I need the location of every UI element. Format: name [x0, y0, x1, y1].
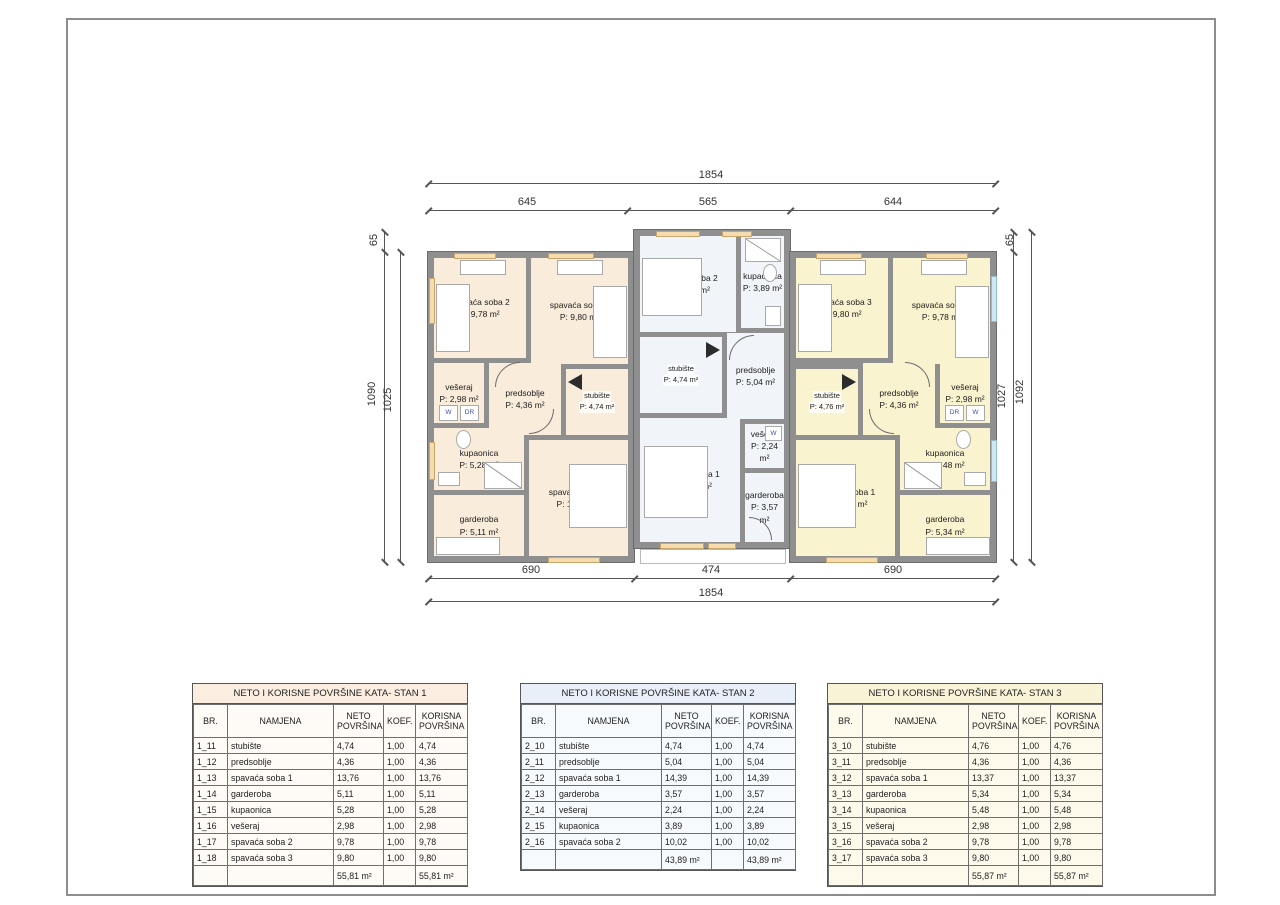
area-table-stan3: NETO I KORISNE POVRŠINE KATA- STAN 3 BR.… [827, 683, 1103, 887]
table-cell: 1,00 [384, 754, 416, 770]
table-cell: 1,00 [384, 850, 416, 866]
table-cell: 1,00 [712, 770, 744, 786]
table-cell: 1,00 [1019, 818, 1051, 834]
room-name: garderoba [926, 513, 965, 525]
table-cell: 55,87 m² [1051, 866, 1103, 886]
table-cell: 1,00 [712, 738, 744, 754]
table-cell: 4,36 [969, 754, 1019, 770]
table-cell: 4,76 [969, 738, 1019, 754]
toilet-icon [763, 264, 777, 282]
dimension-line-left-inner [400, 252, 401, 562]
table-cell: 1,00 [1019, 802, 1051, 818]
room-stan3-stubiste: stubište P: 4,76 m² [796, 369, 858, 435]
table-cell: 3_17 [829, 850, 863, 866]
window [826, 557, 878, 563]
table-cell: stubište [863, 738, 969, 754]
table-cell [863, 866, 969, 886]
table-cell: garderoba [556, 786, 662, 802]
table-row: 1_16vešeraj2,981,002,98 [194, 818, 468, 834]
table-body: 3_10stubište4,761,004,763_11predsoblje4,… [829, 738, 1103, 886]
room-stan1-spavaca-soba-2: spavaća soba 2 P: 9,78 m² [434, 258, 526, 358]
table-cell: 1,00 [384, 770, 416, 786]
table-cell: 1,00 [712, 754, 744, 770]
floor-plan: spavaća soba 2 P: 9,78 m² spavaća soba 3… [425, 230, 997, 570]
table-cell: garderoba [228, 786, 334, 802]
table-cell: 5,34 [1051, 786, 1103, 802]
table-cell: 3_14 [829, 802, 863, 818]
table-cell: 9,78 [1051, 834, 1103, 850]
table-row: 2_10stubište4,741,004,74 [522, 738, 796, 754]
terrace-outline [640, 549, 786, 564]
table-cell: vešeraj [556, 802, 662, 818]
room-area: P: 2,24 m² [745, 440, 784, 465]
table-cell: 13,76 [334, 770, 384, 786]
sink-icon [765, 306, 781, 326]
stair-direction-arrow-icon [842, 374, 856, 390]
table-cell: kupaonica [228, 802, 334, 818]
table-cell: 1,00 [384, 818, 416, 834]
table-cell: 1,00 [384, 786, 416, 802]
dimension-line-top-segments [428, 210, 995, 211]
shower-icon [904, 462, 942, 489]
table-row: 2_14vešeraj2,241,002,24 [522, 802, 796, 818]
table-row: 1_18spavaća soba 39,801,009,80 [194, 850, 468, 866]
room-stan2-garderoba: garderoba P: 3,57 m² [745, 473, 784, 542]
table-cell: predsoblje [228, 754, 334, 770]
column-header: NAMJENA [863, 705, 969, 738]
room-area: P: 5,11 m² [460, 526, 499, 538]
toilet-icon [956, 430, 971, 449]
room-stan3-spavaca-soba-3: spavaća soba 3 P: 9,80 m² [796, 258, 888, 358]
table-row: 2_13garderoba3,571,003,57 [522, 786, 796, 802]
table-cell: spavaća soba 1 [863, 770, 969, 786]
table-cell [1019, 866, 1051, 886]
room-name: predsoblje [879, 387, 918, 399]
table-cell: 1_17 [194, 834, 228, 850]
table-cell: spavaća soba 1 [556, 770, 662, 786]
desk-icon [557, 260, 603, 275]
column-header: KORISNA POVRŠINA [416, 705, 468, 738]
table-cell [522, 850, 556, 870]
room-stan2-predsoblje: predsoblje P: 5,04 m² [727, 333, 784, 419]
sink-icon [964, 472, 986, 486]
table-row: 3_16spavaća soba 29,781,009,78 [829, 834, 1103, 850]
table-row: 43,89 m²43,89 m² [522, 850, 796, 870]
table-cell: 2,98 [334, 818, 384, 834]
dryer-icon: DR [460, 405, 479, 421]
table-row: 3_15vešeraj2,981,002,98 [829, 818, 1103, 834]
dim-label-left-offset: 65 [368, 218, 380, 262]
table-cell: 55,87 m² [969, 866, 1019, 886]
column-header: BR. [194, 705, 228, 738]
table-cell: spavaća soba 2 [228, 834, 334, 850]
table-row: 3_13garderoba5,341,005,34 [829, 786, 1103, 802]
room-stan1-predsoblje: predsoblje P: 4,36 m² [489, 363, 561, 435]
table-row: 1_17spavaća soba 29,781,009,78 [194, 834, 468, 850]
column-header: NETO POVRŠINA [662, 705, 712, 738]
room-stan2-veseraj: vešeraj P: 2,24 m² W [745, 424, 784, 468]
bed-icon [798, 464, 856, 528]
door-arc [495, 362, 520, 387]
table-cell: 1_11 [194, 738, 228, 754]
room-stan1-kupaonica: kupaonica P: 5,28 m² [434, 428, 524, 490]
table-cell: 5,11 [416, 786, 468, 802]
dimension-line-bottom-segments [428, 578, 995, 579]
table-cell: 1_15 [194, 802, 228, 818]
window [816, 253, 862, 259]
table-cell: 14,39 [744, 770, 796, 786]
washer-icon: W [765, 426, 782, 441]
window [429, 278, 435, 324]
table-row: 2_11predsoblje5,041,005,04 [522, 754, 796, 770]
table-cell: 5,34 [969, 786, 1019, 802]
table-cell: 14,39 [662, 770, 712, 786]
table-cell: 4,36 [334, 754, 384, 770]
column-header: NETO POVRŠINA [969, 705, 1019, 738]
table-cell: garderoba [863, 786, 969, 802]
room-stan3-spavaca-soba-1: spavaća soba 1 P: 13,37 m² [796, 440, 895, 556]
room-area: P: 5,04 m² [736, 376, 775, 388]
table-cell: 4,74 [744, 738, 796, 754]
table-row: 3_12spavaća soba 113,371,0013,37 [829, 770, 1103, 786]
table-cell: 1,00 [712, 786, 744, 802]
table-cell: 3_16 [829, 834, 863, 850]
table-cell: 2,98 [969, 818, 1019, 834]
door-arc [905, 362, 930, 387]
table-row: 55,81 m²55,81 m² [194, 866, 468, 886]
table-row: 1_12predsoblje4,361,004,36 [194, 754, 468, 770]
room-stan3-predsoblje: predsoblje P: 4,36 m² [863, 363, 935, 435]
table-cell: 5,28 [334, 802, 384, 818]
table-cell: 1,00 [712, 802, 744, 818]
dim-label-top-total: 1854 [699, 169, 723, 181]
table-cell: 5,04 [744, 754, 796, 770]
table-cell: 4,76 [1051, 738, 1103, 754]
table-cell: 2_15 [522, 818, 556, 834]
dim-label-right-outer: 1092 [1014, 370, 1026, 414]
table-cell: spavaća soba 2 [556, 834, 662, 850]
table-cell: 2_12 [522, 770, 556, 786]
table-cell: 5,28 [416, 802, 468, 818]
table-cell: 1,00 [1019, 850, 1051, 866]
table-row: 2_16spavaća soba 210,021,0010,02 [522, 834, 796, 850]
area-table-stan2: NETO I KORISNE POVRŠINE KATA- STAN 2 BR.… [520, 683, 796, 871]
room-stan3-veseraj: vešeraj P: 2,98 m² DR W [940, 363, 990, 423]
table-row: 3_17spavaća soba 39,801,009,80 [829, 850, 1103, 866]
table-cell: 3,57 [744, 786, 796, 802]
door-arc [869, 409, 894, 434]
washer-icon: W [966, 405, 985, 421]
table-cell: 3_11 [829, 754, 863, 770]
table-cell: vešeraj [228, 818, 334, 834]
bed-icon [644, 446, 708, 518]
table-cell: 2_13 [522, 786, 556, 802]
table-cell [712, 850, 744, 870]
table-cell: 13,37 [969, 770, 1019, 786]
window [991, 440, 997, 482]
door-arc [729, 335, 754, 360]
table-cell: 1,00 [712, 818, 744, 834]
table-row: 1_13spavaća soba 113,761,0013,76 [194, 770, 468, 786]
table-cell: 3,89 [744, 818, 796, 834]
room-stan1-spavaca-soba-3: spavaća soba 3 P: 9,80 m² [531, 258, 628, 364]
table-cell: 9,78 [969, 834, 1019, 850]
table-cell: 1,00 [1019, 738, 1051, 754]
table-body: 2_10stubište4,741,004,742_11predsoblje5,… [522, 738, 796, 870]
room-area: P: 4,74 m² [579, 402, 616, 413]
table-cell: kupaonica [863, 802, 969, 818]
column-header: BR. [522, 705, 556, 738]
table-cell: 9,78 [334, 834, 384, 850]
table-cell: 10,02 [662, 834, 712, 850]
table-cell [228, 866, 334, 886]
table-row: 55,87 m²55,87 m² [829, 866, 1103, 886]
table-header-row: BR.NAMJENANETO POVRŠINAKOEF.KORISNA POVR… [522, 705, 796, 738]
area-table-stan1: NETO I KORISNE POVRŠINE KATA- STAN 1 BR.… [192, 683, 468, 887]
table-cell: stubište [228, 738, 334, 754]
unit-stan2: spavaća soba 2 P: 10,02 m² kupaonica P: … [634, 230, 790, 548]
room-stan2-spavaca-soba-2: spavaća soba 2 P: 10,02 m² [640, 236, 736, 332]
room-name: kupaonica [926, 447, 965, 459]
room-stan3-spavaca-soba-2: spavaća soba 2 P: 9,78 m² [893, 258, 990, 364]
table-cell: predsoblje [863, 754, 969, 770]
dim-label-bottom-seg2: 474 [702, 564, 720, 576]
room-area: P: 3,89 m² [743, 282, 782, 294]
room-stan1-veseraj: vešeraj P: 2,98 m² W DR [434, 363, 484, 423]
table-cell: predsoblje [556, 754, 662, 770]
window [722, 231, 752, 237]
table-cell: 4,74 [416, 738, 468, 754]
table-cell: 43,89 m² [744, 850, 796, 870]
room-name: stubište [583, 391, 611, 402]
table-cell: 1_13 [194, 770, 228, 786]
table-cell: 13,37 [1051, 770, 1103, 786]
column-header: NETO POVRŠINA [334, 705, 384, 738]
room-area: P: 2,98 m² [945, 393, 984, 405]
table-cell: stubište [556, 738, 662, 754]
window [926, 253, 968, 259]
bed-icon [569, 464, 627, 528]
table-cell [384, 866, 416, 886]
table-cell: 5,48 [1051, 802, 1103, 818]
table-cell: 43,89 m² [662, 850, 712, 870]
dim-label-top-seg2: 565 [699, 196, 717, 208]
table-cell: 3_12 [829, 770, 863, 786]
table-cell: 5,11 [334, 786, 384, 802]
table-cell: 3_15 [829, 818, 863, 834]
bed-icon [642, 258, 702, 316]
table-cell: 9,78 [416, 834, 468, 850]
table-title: NETO I KORISNE POVRŠINE KATA- STAN 2 [521, 684, 795, 704]
unit-stan1: spavaća soba 2 P: 9,78 m² spavaća soba 3… [428, 252, 634, 562]
table-row: 1_15kupaonica5,281,005,28 [194, 802, 468, 818]
bed-icon [593, 286, 627, 358]
dim-label-right-inner: 1027 [996, 374, 1008, 418]
shower-icon [745, 238, 781, 262]
dimension-line-bottom-total [428, 601, 995, 602]
table-cell: 1_18 [194, 850, 228, 866]
dim-label-left-outer: 1090 [366, 372, 378, 416]
table-cell: 4,74 [662, 738, 712, 754]
stair-direction-arrow-icon [706, 342, 720, 358]
window [656, 231, 700, 237]
table-cell: 2,24 [744, 802, 796, 818]
column-header: KORISNA POVRŠINA [1051, 705, 1103, 738]
table-row: 3_14kupaonica5,481,005,48 [829, 802, 1103, 818]
room-area: P: 4,76 m² [809, 402, 846, 413]
table-cell: spavaća soba 3 [863, 850, 969, 866]
dim-label-top-seg1: 645 [518, 196, 536, 208]
door-arc [749, 517, 772, 540]
table-row: 2_12spavaća soba 114,391,0014,39 [522, 770, 796, 786]
table-cell: 3,89 [662, 818, 712, 834]
table-cell: 2_14 [522, 802, 556, 818]
dim-label-bottom-seg3: 690 [884, 564, 902, 576]
room-area: P: 2,98 m² [439, 393, 478, 405]
dim-label-left-inner: 1025 [382, 378, 394, 422]
column-header: NAMJENA [556, 705, 662, 738]
room-name: vešeraj [445, 381, 472, 393]
room-area: P: 5,34 m² [925, 526, 964, 538]
table-cell: 1,00 [1019, 770, 1051, 786]
room-name: stubište [813, 391, 841, 402]
table-cell: 10,02 [744, 834, 796, 850]
wardrobe-icon [436, 537, 500, 555]
table-row: 3_10stubište4,761,004,76 [829, 738, 1103, 754]
desk-icon [820, 260, 866, 275]
table-header-row: BR.NAMJENANETO POVRŠINAKOEF.KORISNA POVR… [194, 705, 468, 738]
table-cell: 1,00 [1019, 834, 1051, 850]
bed-icon [436, 284, 470, 352]
desk-icon [921, 260, 967, 275]
table-row: 2_15kupaonica3,891,003,89 [522, 818, 796, 834]
table-cell: spavaća soba 3 [228, 850, 334, 866]
table-cell: 3_10 [829, 738, 863, 754]
room-stan2-stubiste: stubište P: 4,74 m² [640, 337, 722, 413]
room-stan3-garderoba: garderoba P: 5,34 m² [900, 495, 990, 556]
room-stan1-spavaca-soba-1: spavaća soba 1 P: 13,76 m² [529, 440, 628, 556]
column-header: NAMJENA [228, 705, 334, 738]
table-cell: spavaća soba 2 [863, 834, 969, 850]
table-cell: 4,74 [334, 738, 384, 754]
room-name: predsoblje [736, 364, 775, 376]
table-cell: 1,00 [384, 802, 416, 818]
door-arc [529, 409, 554, 434]
column-header: KORISNA POVRŠINA [744, 705, 796, 738]
washer-icon: W [439, 405, 458, 421]
dim-label-right-offset: 65 [1004, 218, 1016, 262]
table-cell: kupaonica [556, 818, 662, 834]
column-header: KOEF. [384, 705, 416, 738]
table-cell: 5,48 [969, 802, 1019, 818]
table-cell: vešeraj [863, 818, 969, 834]
window [991, 276, 997, 322]
dryer-icon: DR [945, 405, 964, 421]
table-row: 1_11stubište4,741,004,74 [194, 738, 468, 754]
table-cell: 2_10 [522, 738, 556, 754]
table-cell: 55,81 m² [416, 866, 468, 886]
window [429, 442, 435, 480]
table-cell: 9,80 [416, 850, 468, 866]
table-cell: 2,98 [1051, 818, 1103, 834]
table-cell: 4,36 [1051, 754, 1103, 770]
room-name: predsoblje [505, 387, 544, 399]
table-cell [829, 866, 863, 886]
room-stan1-stubiste: stubište P: 4,74 m² [566, 369, 628, 435]
column-header: BR. [829, 705, 863, 738]
room-name: garderoba [745, 489, 784, 501]
column-header: KOEF. [712, 705, 744, 738]
room-stan2-kupaonica: kupaonica P: 3,89 m² [741, 236, 784, 328]
table-cell: 3,57 [662, 786, 712, 802]
table-cell: 1,00 [384, 738, 416, 754]
table-cell: 1,00 [1019, 786, 1051, 802]
column-header: KOEF. [1019, 705, 1051, 738]
table-row: 3_11predsoblje4,361,004,36 [829, 754, 1103, 770]
table-cell: 9,80 [334, 850, 384, 866]
table-cell: 1,00 [1019, 754, 1051, 770]
table-cell: 3_13 [829, 786, 863, 802]
room-stan2-spavaca-soba-1: spavaća soba 1 P: 14,39 m² [640, 418, 740, 542]
table-cell: 2,98 [416, 818, 468, 834]
table-cell: spavaća soba 1 [228, 770, 334, 786]
toilet-icon [456, 430, 471, 449]
table-cell: 13,76 [416, 770, 468, 786]
table-cell [556, 850, 662, 870]
shower-icon [484, 462, 522, 489]
dimension-line-right-outer [1031, 232, 1032, 562]
dim-label-bottom-seg1: 690 [522, 564, 540, 576]
table-body: 1_11stubište4,741,004,741_12predsoblje4,… [194, 738, 468, 886]
desk-icon [460, 260, 506, 275]
room-name: garderoba [460, 513, 499, 525]
bed-icon [955, 286, 989, 358]
table-cell: 1_16 [194, 818, 228, 834]
table-title: NETO I KORISNE POVRŠINE KATA- STAN 3 [828, 684, 1102, 704]
table-title: NETO I KORISNE POVRŠINE KATA- STAN 1 [193, 684, 467, 704]
table-cell: 55,81 m² [334, 866, 384, 886]
table-cell: 4,36 [416, 754, 468, 770]
table-cell: 1,00 [712, 834, 744, 850]
table-cell: 2,24 [662, 802, 712, 818]
dimension-line-top-total [428, 183, 995, 184]
dim-label-bottom-total: 1854 [699, 587, 723, 599]
table-cell: 9,80 [1051, 850, 1103, 866]
room-area: P: 4,74 m² [663, 375, 700, 386]
table-cell: 9,80 [969, 850, 1019, 866]
sink-icon [438, 472, 460, 486]
window [548, 557, 600, 563]
room-name: vešeraj [951, 381, 978, 393]
room-stan3-kupaonica: kupaonica P: 5,48 m² [900, 428, 990, 490]
room-stan1-garderoba: garderoba P: 5,11 m² [434, 495, 524, 556]
table-cell [194, 866, 228, 886]
table-cell: 1_14 [194, 786, 228, 802]
table-header-row: BR.NAMJENANETO POVRŠINAKOEF.KORISNA POVR… [829, 705, 1103, 738]
table-cell: 2_16 [522, 834, 556, 850]
room-name: stubište [667, 364, 695, 375]
dim-label-top-seg3: 644 [884, 196, 902, 208]
table-cell: 1_12 [194, 754, 228, 770]
window [454, 253, 496, 259]
bed-icon [798, 284, 832, 352]
wardrobe-icon [926, 537, 990, 555]
table-row: 1_14garderoba5,111,005,11 [194, 786, 468, 802]
table-cell: 1,00 [384, 834, 416, 850]
stair-direction-arrow-icon [568, 374, 582, 390]
table-cell: 5,04 [662, 754, 712, 770]
unit-stan3: spavaća soba 3 P: 9,80 m² spavaća soba 2… [790, 252, 996, 562]
